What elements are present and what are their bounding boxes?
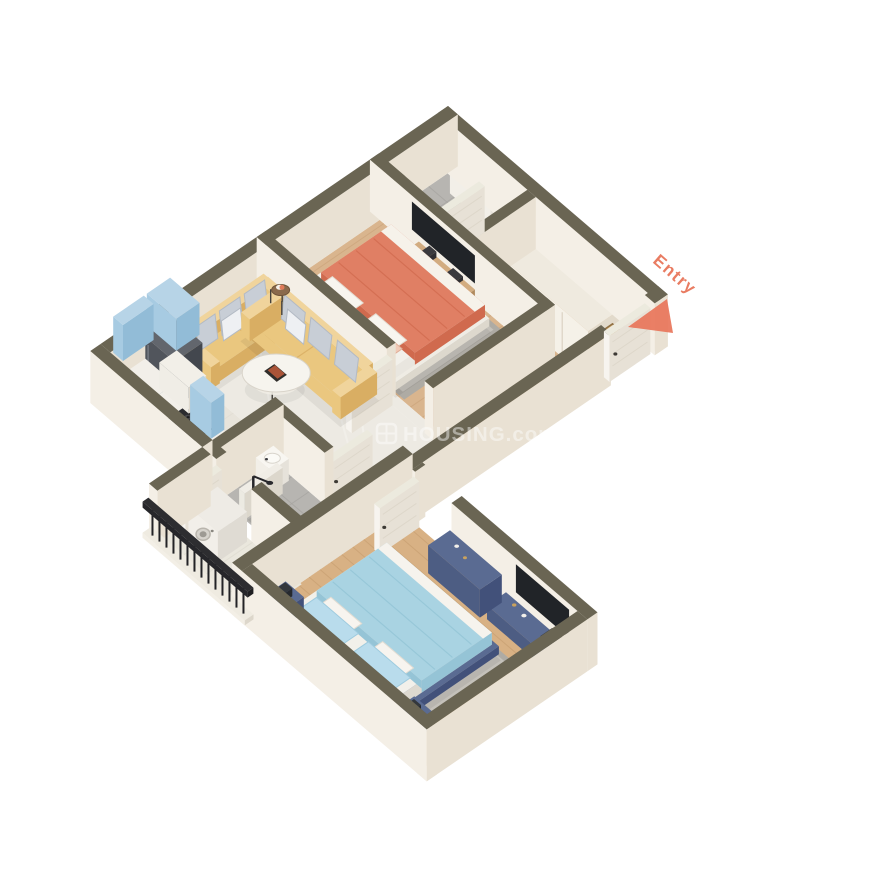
watermark-text: HOUSING.com [403, 423, 558, 446]
floorplan-render: Entry HOUSING.com [0, 0, 870, 870]
watermark: HOUSING.com [377, 423, 558, 446]
floorplan-3d-canvas: Entry HOUSING.com [0, 0, 870, 870]
